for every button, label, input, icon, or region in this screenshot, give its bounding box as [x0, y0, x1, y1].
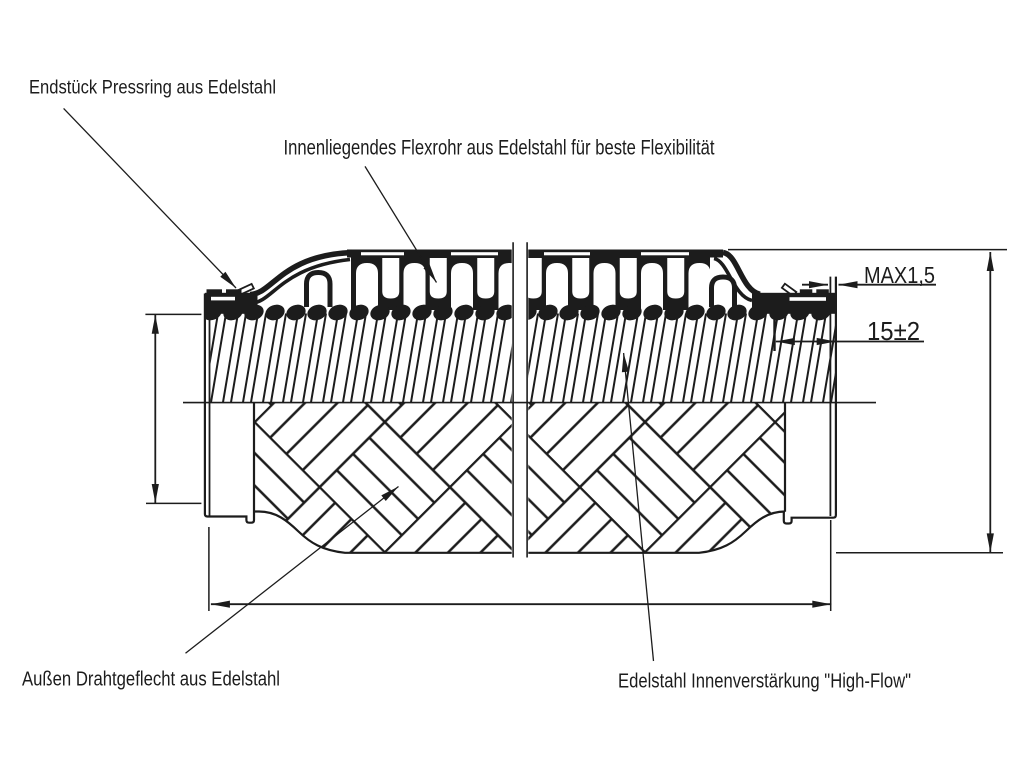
svg-text:MAX1,5: MAX1,5	[864, 262, 935, 288]
svg-text:Endstück Pressring aus Edelsta: Endstück Pressring aus Edelstahl	[29, 77, 276, 99]
svg-text:Edelstahl Innenverstärkung "Hi: Edelstahl Innenverstärkung "High-Flow"	[618, 670, 911, 693]
svg-text:Außen Drahtgeflecht aus Edelst: Außen Drahtgeflecht aus Edelstahl	[22, 668, 280, 691]
svg-text:15±2: 15±2	[867, 316, 920, 346]
svg-text:Innenliegendes Flexrohr aus Ed: Innenliegendes Flexrohr aus Edelstahl fü…	[284, 137, 715, 160]
